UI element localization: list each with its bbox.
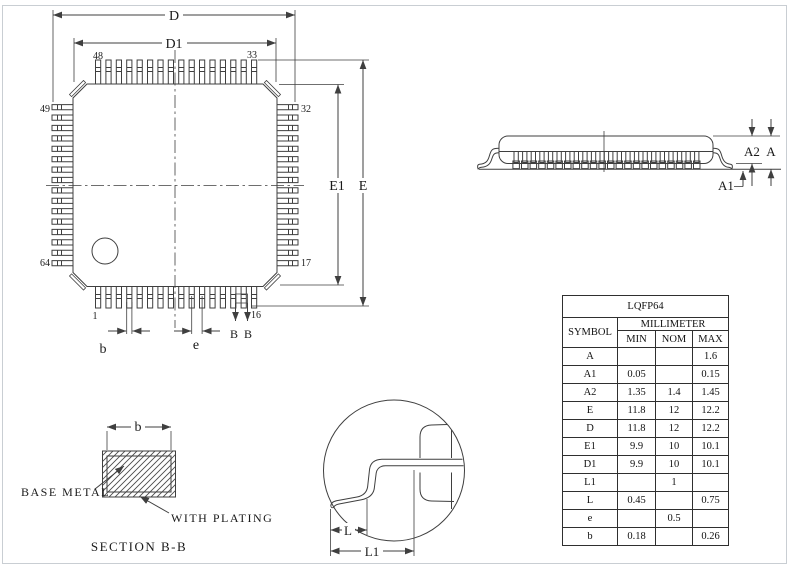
lead-detail-view: L L1 xyxy=(324,400,465,559)
detail-circle xyxy=(324,400,465,541)
top-view: D D1 E E1 b xyxy=(40,8,372,357)
chamfer-bottom-right xyxy=(264,274,280,290)
detail-body-upper xyxy=(420,425,448,459)
table-row: L11 xyxy=(563,474,729,492)
pin-number-17: 17 xyxy=(301,258,311,269)
top-pin-row xyxy=(96,60,257,84)
pin1-index-mark xyxy=(92,238,118,264)
dim-label-A1: A1 xyxy=(718,178,734,193)
dim-label-E: E xyxy=(359,179,368,194)
gull-lead-right-inner xyxy=(713,153,732,170)
leader-with-plating xyxy=(140,497,169,514)
pin-number-64: 64 xyxy=(40,258,50,269)
col-header-nom: NOM xyxy=(656,331,693,348)
table-row: D19.91010.1 xyxy=(563,456,729,474)
lqfp64-package-drawing: D D1 E E1 b xyxy=(0,0,789,569)
section-bb-view: b BASE METAL WITH PLATING SECTION B-B xyxy=(21,419,273,554)
dim-label-D1: D1 xyxy=(165,37,182,52)
table-row: b0.180.26 xyxy=(563,528,729,546)
with-plating-label: WITH PLATING xyxy=(171,511,273,525)
dim-label-L: L xyxy=(344,523,352,538)
base-metal-label: BASE METAL xyxy=(21,485,110,499)
table-row: e0.5 xyxy=(563,510,729,528)
symbol-header: SYMBOL xyxy=(563,318,618,348)
table-row: L0.450.75 xyxy=(563,492,729,510)
col-header-min: MIN xyxy=(618,331,656,348)
dim-label-A2: A2 xyxy=(744,144,760,159)
pin-number-48: 48 xyxy=(93,51,103,62)
table-row: E19.91010.1 xyxy=(563,438,729,456)
dim-label-e: e xyxy=(193,338,199,353)
pin-number-1: 1 xyxy=(93,311,98,322)
dim-label-D: D xyxy=(169,9,179,24)
bottom-pin-row xyxy=(96,287,257,309)
table-title: LQFP64 xyxy=(563,296,729,318)
col-header-max: MAX xyxy=(693,331,729,348)
pin-number-16: 16 xyxy=(251,310,261,321)
table-row: E11.81212.2 xyxy=(563,402,729,420)
pin-number-32: 32 xyxy=(301,104,311,115)
detail-body-lower xyxy=(420,473,454,502)
dim-label-A: A xyxy=(766,144,776,159)
section-label-B-left: B xyxy=(230,327,238,341)
gull-lead-right xyxy=(713,148,732,169)
section-label-B-right: B xyxy=(244,327,252,341)
dim-label-E1: E1 xyxy=(329,179,345,194)
dim-label-L1: L1 xyxy=(365,544,379,559)
unit-header: MILLIMETER xyxy=(618,318,729,331)
pin-number-33: 33 xyxy=(247,50,257,61)
table-row: A21.351.41.45 xyxy=(563,384,729,402)
dim-label-b: b xyxy=(100,342,107,357)
table-row: A10.050.15 xyxy=(563,366,729,384)
table-row: D11.81212.2 xyxy=(563,420,729,438)
table-row: A1.6 xyxy=(563,348,729,366)
dim-label-b-section: b xyxy=(135,420,142,435)
chamfer-bottom-left xyxy=(70,274,86,290)
chamfer-top-right xyxy=(264,81,280,97)
dimension-table: LQFP64 SYMBOL MILLIMETER MIN NOM MAX A1.… xyxy=(562,295,729,546)
gull-lead-left-inner xyxy=(478,153,499,170)
chamfer-top-left xyxy=(70,81,86,97)
gull-lead-left xyxy=(478,148,499,169)
section-bb-caption: SECTION B-B xyxy=(91,539,187,554)
side-view-leads xyxy=(513,152,700,169)
side-view: A2 A A1 xyxy=(478,119,781,193)
pin-number-49: 49 xyxy=(40,104,50,115)
